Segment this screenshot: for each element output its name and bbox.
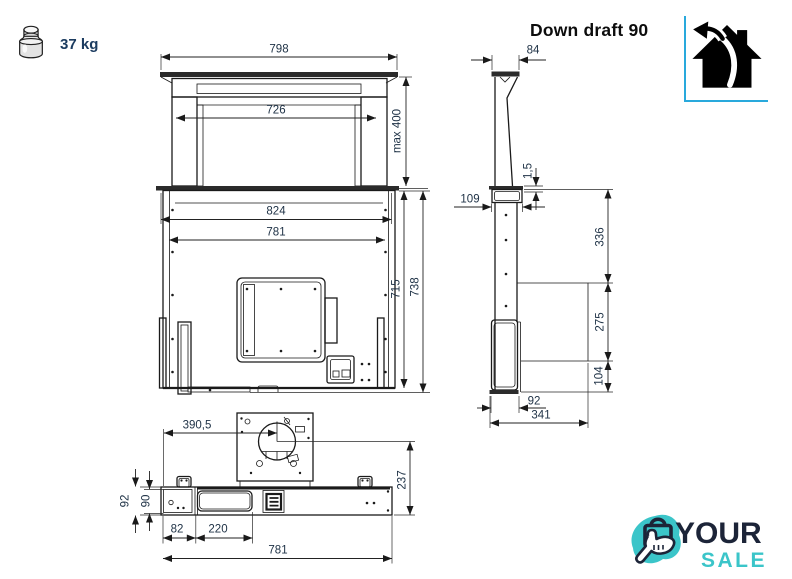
dim-92-side-label: 92 — [528, 396, 541, 408]
dim-104-label: 104 — [594, 366, 606, 385]
dim-726-label: 726 — [266, 105, 285, 117]
dim-824-label: 824 — [266, 206, 285, 218]
dim-220-label: 220 — [208, 524, 227, 536]
dim-336-label: 336 — [595, 227, 607, 246]
dim-1-5-label: 1,5 — [523, 163, 535, 179]
dim-84-label: 84 — [527, 45, 540, 57]
dim-max400-label: max 400 — [392, 109, 404, 153]
your-sale-line1: YOUR — [675, 519, 767, 549]
weight-badge: 37 kg — [14, 24, 98, 65]
dim-341-label: 341 — [531, 410, 550, 422]
weight-label: 37 kg — [60, 36, 98, 53]
house-recirculation-icon — [691, 19, 763, 98]
dim-275-label: 275 — [595, 312, 607, 331]
dim-781-bottom-label: 781 — [268, 545, 287, 557]
dim-109-label: 109 — [460, 194, 479, 206]
your-sale-line2: SALE — [701, 550, 767, 571]
dim-90-label: 90 — [141, 495, 153, 508]
dim-798-label: 798 — [269, 44, 288, 56]
bottom-view-drawing — [136, 413, 416, 564]
dim-715-label: 715 — [391, 279, 403, 298]
weight-icon — [14, 24, 48, 65]
your-sale-wordmark: YOUR SALE — [675, 519, 767, 571]
your-sale-logo: YOUR SALE — [625, 509, 767, 576]
dim-237-label: 237 — [397, 470, 409, 489]
page-title: Down draft 90 — [530, 20, 648, 41]
dim-92-bottom-label: 92 — [120, 495, 132, 508]
dim-781-body-label: 781 — [266, 227, 285, 239]
house-recirculation-logo — [684, 16, 768, 102]
dim-738-label: 738 — [410, 277, 422, 296]
side-view-drawing — [454, 55, 613, 428]
dim-390-5-label: 390,5 — [183, 420, 212, 432]
dim-82-label: 82 — [171, 524, 184, 536]
front-view-drawing — [156, 54, 430, 394]
